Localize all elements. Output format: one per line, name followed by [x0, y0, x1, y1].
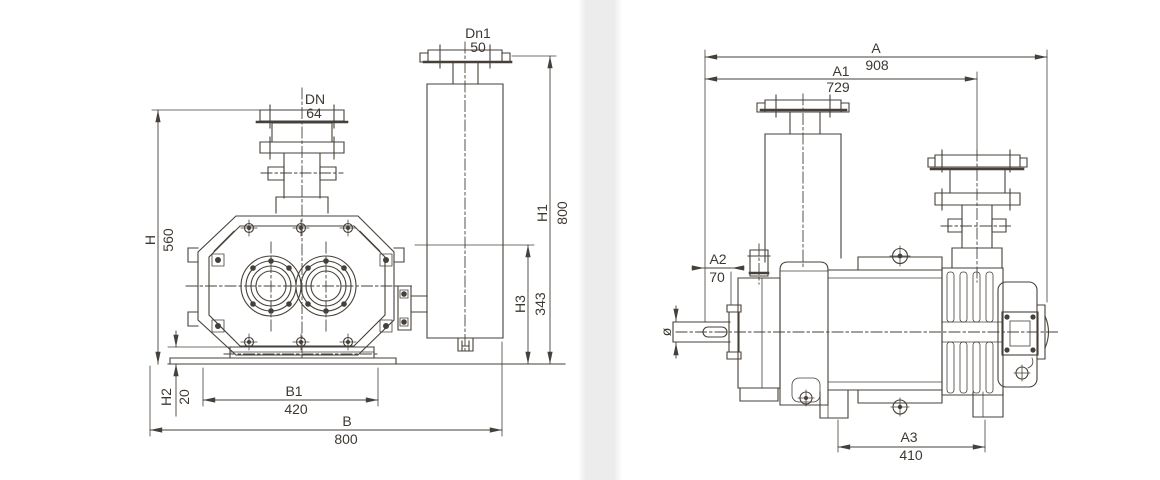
cooling-fins [942, 268, 1003, 395]
dim-dn1-value: 50 [470, 39, 486, 55]
dim-dn-value: 64 [306, 105, 322, 121]
silencer-tank-side [757, 94, 849, 268]
dim-a2: A2 70 [692, 251, 744, 305]
dim-a3: A3 410 [838, 420, 985, 463]
dim-b1-label: B1 [285, 383, 302, 399]
dim-shaft-diameter-symbol: ø [658, 327, 674, 336]
pump-base [168, 347, 565, 364]
label-dn: DN 64 [305, 91, 325, 121]
dim-b1: B1 420 [203, 368, 378, 417]
dim-h-value: 560 [160, 228, 176, 252]
dim-h2-label: H2 [158, 388, 174, 406]
dim-a-value: 908 [865, 57, 889, 73]
dim-a3-label: A3 [900, 429, 917, 445]
dim-h2-value: 20 [176, 389, 192, 405]
dim-h3-label: H3 [512, 295, 528, 313]
divider-band [578, 0, 622, 480]
technical-drawing-canvas: H 560 H1 800 H3 343 H2 20 B1 420 [0, 0, 1160, 480]
dim-b1-value: 420 [284, 401, 308, 417]
pump-dimensional-drawing: H 560 H1 800 H3 343 H2 20 B1 420 [0, 0, 1160, 480]
dim-h1-label: H1 [534, 204, 550, 222]
dim-a3-value: 410 [899, 447, 923, 463]
dim-h-label: H [142, 235, 158, 245]
discharge-port [398, 286, 427, 330]
dim-h3: H3 343 [415, 245, 548, 364]
dim-shaft-diameter: ø [658, 306, 676, 358]
dim-a1-value: 729 [826, 79, 850, 95]
bearing-housing [738, 278, 780, 401]
inlet-port-side [928, 150, 1027, 282]
dim-a1-label: A1 [832, 63, 849, 79]
dim-a2-label: A2 [709, 251, 726, 267]
inlet-port-dn [257, 105, 347, 213]
dim-h3-value: 343 [532, 292, 548, 316]
end-cover [998, 282, 1049, 387]
dim-a2-value: 70 [709, 269, 725, 285]
dim-b-value: 800 [334, 431, 358, 447]
dim-b-label: B [342, 413, 351, 429]
silencer-tank [420, 42, 511, 352]
dim-a: A 908 [705, 40, 1047, 322]
dim-h1: H1 800 [512, 56, 570, 364]
dim-a-label: A [871, 40, 881, 56]
dim-h1-value: 800 [554, 201, 570, 225]
gear-cover [780, 262, 828, 406]
side-view: A 908 A1 729 A2 70 ø A3 410 [658, 40, 1058, 463]
front-view: H 560 H1 800 H3 343 H2 20 B1 420 [142, 25, 570, 447]
dim-h2: H2 20 [158, 331, 232, 416]
